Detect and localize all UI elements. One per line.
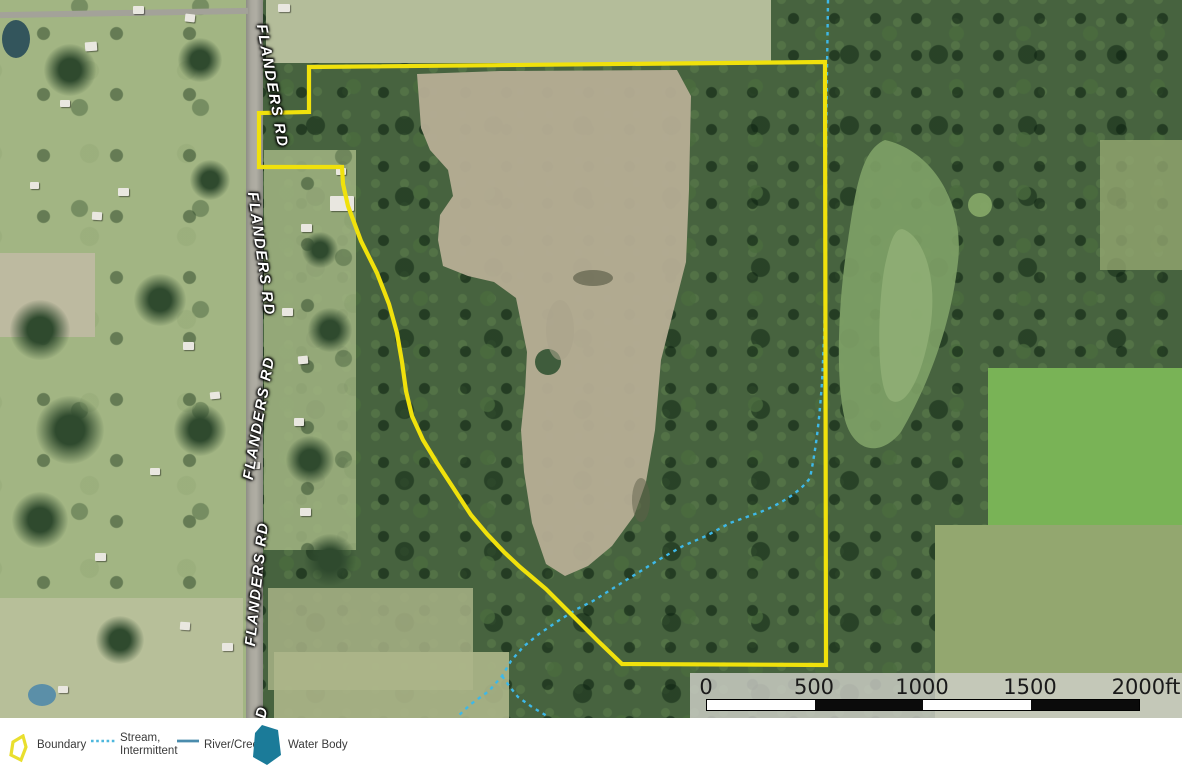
stream-intermittent-line: [457, 0, 828, 717]
boundary-outline-icon: [9, 734, 29, 763]
water-polygon-icon: [251, 724, 283, 766]
scale-segment: [923, 700, 1031, 710]
scale-tick-0: 0: [699, 675, 712, 699]
scale-tick-500: 500: [794, 675, 834, 699]
road-label-partial: D: [253, 704, 272, 718]
scale-tick-1000: 1000: [895, 675, 948, 699]
legend-label-boundary: Boundary: [37, 739, 86, 751]
scale-tick-1500: 1500: [1003, 675, 1056, 699]
aerial-map-canvas: FLANDERS RD FLANDERS RD FLANDERS RD FLAN…: [0, 0, 1182, 718]
map-legend: Boundary Stream, Intermittent River/Cree…: [0, 718, 1182, 772]
map-line-work: [0, 0, 1182, 718]
solid-line-icon: [177, 738, 199, 744]
scale-bar-segments: [706, 699, 1140, 711]
map-export-page: FLANDERS RD FLANDERS RD FLANDERS RD FLAN…: [0, 0, 1182, 772]
scale-tick-2000ft: 2000ft: [1112, 675, 1181, 699]
legend-label-water-body: Water Body: [288, 739, 348, 751]
parcel-boundary: [259, 62, 826, 665]
scale-segment: [1031, 700, 1139, 710]
scale-bar: 0 500 1000 1500 2000ft: [690, 673, 1182, 718]
legend-label-stream-line1: Stream,: [120, 732, 160, 744]
legend-label-stream-line2: Intermittent: [120, 745, 178, 757]
scale-segment: [815, 700, 923, 710]
dashed-line-icon: [91, 738, 115, 744]
scale-segment: [707, 700, 815, 710]
